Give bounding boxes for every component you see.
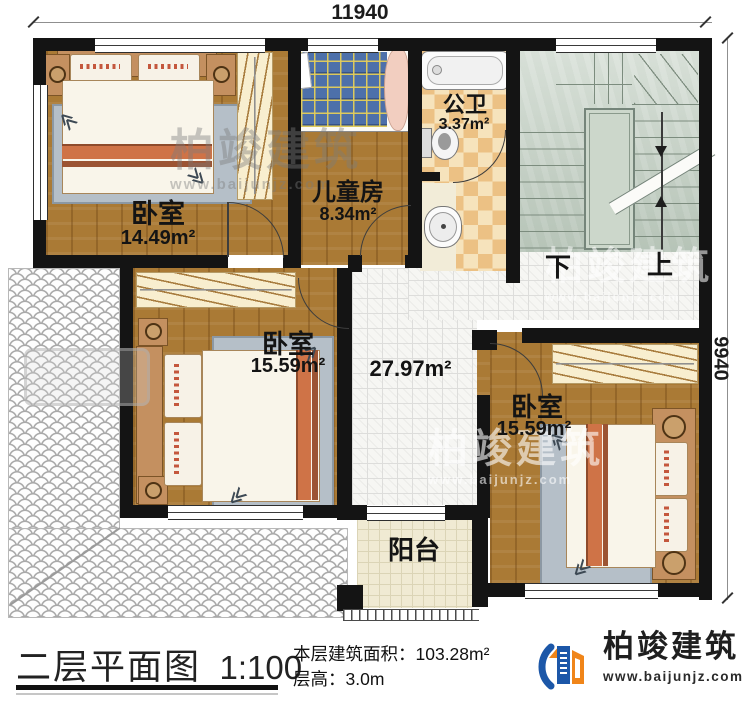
bedroom3-wardrobe bbox=[552, 344, 698, 384]
wall-bedroom2-bottom bbox=[120, 505, 168, 518]
window bbox=[95, 38, 265, 53]
balcony-label: 阳台 bbox=[355, 536, 473, 564]
window bbox=[308, 38, 378, 53]
title-block: 二层平面图 1:100 bbox=[16, 639, 302, 690]
pillow-stitch-decor bbox=[148, 64, 188, 69]
wall-balcony-right bbox=[472, 515, 488, 607]
building-area-label: 本层建筑面积： bbox=[293, 644, 416, 664]
nightstand-knob bbox=[49, 66, 66, 83]
bedroom3-label: 卧室 bbox=[477, 393, 597, 421]
bedroom2-pillow bbox=[164, 354, 202, 418]
brand-logo: 柏竣建筑 www.baijunjz.com bbox=[537, 630, 744, 694]
wall-right bbox=[699, 38, 712, 600]
hall-area: 27.97m² bbox=[348, 357, 473, 381]
balcony-sliding-door bbox=[367, 506, 445, 521]
floor-plan-canvas: 11940 9940 ≫ ≫ bbox=[0, 0, 750, 706]
wall-bedroom1-kids-divider bbox=[288, 38, 301, 268]
kids-bed-plaid-duvet bbox=[301, 52, 387, 127]
title-underline-thin bbox=[16, 693, 278, 695]
stair-direction-line bbox=[661, 112, 663, 250]
bedroom1-label: 卧室 bbox=[98, 200, 218, 229]
brand-name: 柏竣建筑 bbox=[603, 630, 744, 664]
window bbox=[525, 583, 658, 599]
stair-down-label: 下 bbox=[538, 253, 578, 281]
bedroom1-wardrobe bbox=[237, 52, 273, 200]
bedroom1-bed-stripe bbox=[62, 144, 212, 159]
stair-winders bbox=[634, 54, 698, 104]
wall-bathroom-interior bbox=[420, 172, 440, 181]
wall-bathroom-stair-divider bbox=[506, 38, 520, 283]
wall-bedroom2-left bbox=[120, 268, 133, 518]
wall-kids-bottom bbox=[405, 255, 422, 268]
floor-height-label: 层高： bbox=[293, 669, 346, 689]
pillow-stitch-decor bbox=[80, 64, 120, 69]
stair-void bbox=[584, 108, 635, 250]
pillow-stitch-decor bbox=[174, 432, 179, 474]
wall-bedroom1-bottom bbox=[33, 255, 228, 268]
wall-balcony-top bbox=[337, 505, 367, 520]
top-dimension-text: 11940 bbox=[300, 1, 420, 25]
bathtub-drain bbox=[432, 65, 442, 75]
pillow-stitch-decor bbox=[664, 450, 669, 486]
wall-bedroom1-bottom bbox=[283, 255, 295, 268]
kids-bed-blanket bbox=[384, 49, 409, 131]
bedroom2-label: 卧室 bbox=[228, 330, 348, 358]
roof-bottom bbox=[8, 528, 348, 618]
wall-balcony-post bbox=[337, 585, 363, 611]
headboard-knob bbox=[662, 415, 686, 439]
page-title: 二层平面图 bbox=[16, 648, 201, 687]
bedroom3-bed-stripe bbox=[586, 424, 602, 566]
building-area-value: 103.28m² bbox=[416, 644, 490, 664]
toilet-seat bbox=[438, 133, 451, 150]
title-underline-thick bbox=[16, 685, 278, 690]
wall-bedroom3-top bbox=[522, 328, 712, 343]
bedroom3-bed-duvet bbox=[566, 424, 656, 568]
page-scale: 1:100 bbox=[219, 649, 302, 686]
bedroom1-bed-stripe bbox=[62, 161, 212, 167]
bedroom3-area: 15.59m² bbox=[474, 419, 594, 441]
bedroom2-area: 15.59m² bbox=[228, 356, 348, 378]
right-dimension-text: 9940 bbox=[709, 329, 732, 389]
nightstand-knob bbox=[145, 482, 162, 499]
bedroom2-wardrobe bbox=[136, 272, 296, 308]
bedroom3-pillow bbox=[652, 442, 688, 496]
nightstand-knob bbox=[213, 66, 230, 83]
window bbox=[33, 85, 48, 220]
bedroom3-pillow bbox=[652, 498, 688, 552]
stair-treads-left bbox=[520, 132, 585, 252]
headboard-knob bbox=[662, 551, 686, 575]
balcony-railing bbox=[343, 609, 479, 621]
sink-drain bbox=[441, 224, 446, 229]
pillow-stitch-decor bbox=[664, 506, 669, 542]
window bbox=[168, 505, 303, 520]
nightstand-knob bbox=[145, 323, 162, 340]
info-block: 本层建筑面积：103.28m² 层高：3.0m bbox=[293, 642, 489, 691]
door-leaf-bedroom1 bbox=[227, 202, 229, 257]
stair-arrow-down bbox=[655, 146, 667, 157]
kids-room-area: 8.34m² bbox=[288, 205, 408, 224]
bedroom2-pillow bbox=[164, 422, 202, 486]
building-area-line: 本层建筑面积：103.28m² bbox=[293, 642, 489, 667]
brand-website: www.baijunjz.com bbox=[603, 669, 744, 684]
wall-bedroom3-bottom bbox=[658, 583, 712, 597]
brand-logo-icon bbox=[537, 630, 595, 694]
right-dimension-line bbox=[727, 38, 728, 600]
stair-up-label: 上 bbox=[640, 251, 680, 279]
bedroom3-bed-stripe bbox=[603, 424, 608, 566]
stair-arrow-up bbox=[655, 196, 667, 207]
bathroom-label: 公卫 bbox=[433, 93, 497, 117]
pillow-stitch-decor bbox=[174, 364, 179, 406]
bedroom1-area: 14.49m² bbox=[98, 228, 218, 250]
kids-room-label: 儿童房 bbox=[288, 180, 408, 206]
floor-height-value: 3.0m bbox=[346, 669, 385, 689]
bathroom-area: 3.37m² bbox=[428, 116, 500, 133]
stair-landing-outline bbox=[556, 84, 632, 85]
window bbox=[556, 38, 656, 53]
stair-upper-lines bbox=[594, 51, 628, 104]
floor-height-line: 层高：3.0m bbox=[293, 667, 489, 692]
